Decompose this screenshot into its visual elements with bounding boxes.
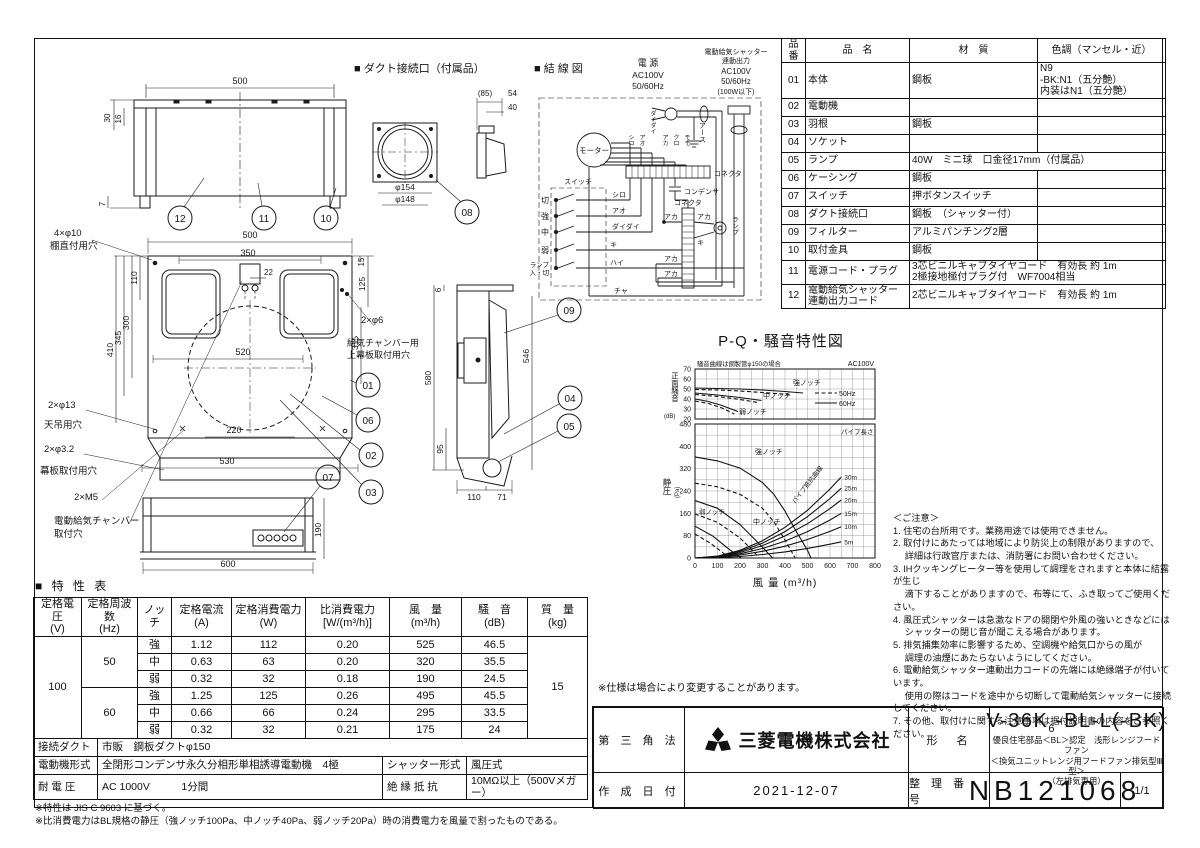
wiring-sw-hi: 強 (541, 211, 549, 221)
dim-frontview-22: 22 (264, 268, 273, 277)
svg-text:300: 300 (757, 563, 769, 570)
table-cell: 鋼板 （シャッター付） (910, 206, 1038, 224)
characteristics-block: ■ 特 性 表 定格電圧 (V)定格周波数 (Hz)ノッチ定格電流 (A)定格消… (33, 577, 587, 829)
spec-sub-table: 接続ダクト市販 鋼板ダクトφ150電動機形式全閉形コンデンサ永久分相形単相誘導電… (33, 738, 588, 800)
wiring-wire-aka2: アカ (697, 213, 711, 221)
table-cell: ケーシング (806, 170, 910, 188)
chart-series-中ノッチ60Hz (695, 393, 761, 401)
table-cell: N9 -BK:N1（五分艶） 内装はN1（五分艶） (1038, 63, 1166, 99)
table-cell: 0.32 (172, 721, 232, 738)
table-cell: 33.5 (462, 704, 528, 721)
table-cell: 絶 縁 抵 抗 (383, 774, 467, 799)
model-name: V-36K6-BL-L(-BK) (986, 710, 1166, 735)
table-cell: 125 (232, 687, 306, 704)
svg-text:700: 700 (847, 563, 859, 570)
wiring-shutter-line3: AC100V (721, 67, 751, 76)
table-cell (1038, 170, 1166, 188)
table-cell: 0.63 (172, 653, 232, 670)
table-cell: 市販 鋼板ダクトφ150 (98, 738, 588, 756)
dim-sideview-6: 6 (434, 287, 443, 292)
svg-text:30: 30 (683, 407, 691, 414)
pq-plot-area: 0801602403204004800100200300400500600700… (679, 422, 881, 571)
dim-duct-148: φ148 (395, 194, 415, 204)
pipe-length-tick: 10m (844, 524, 857, 531)
table-cell: 鋼板 (910, 116, 1038, 134)
pipe-length-label: パイプ長さ (841, 428, 874, 436)
wiring-wire-ki2: キ (697, 240, 704, 247)
table-cell: 0.21 (306, 721, 390, 738)
table-cell: 05 (782, 152, 806, 170)
table-cell: 0.20 (306, 636, 390, 653)
dim-topview-16: 16 (114, 114, 123, 123)
table-cell: 風圧式 (467, 756, 588, 774)
table-cell: 295 (390, 704, 462, 721)
characteristics-title: ■ 特 性 表 (35, 577, 587, 594)
table-cell: 羽根 (806, 116, 910, 134)
callout-10-num: 10 (320, 214, 332, 225)
wiring-section-header: ■ 結 線 図 (534, 61, 583, 75)
model-label: 形 名 (927, 732, 972, 748)
legend-50hz: 50Hz (839, 391, 856, 398)
table-cell: シャッター形式 (383, 756, 467, 774)
callout-11-num: 11 (259, 214, 270, 225)
table-cell: 弱 (138, 670, 172, 687)
date-label: 作 成 日 付 (598, 783, 679, 799)
dim-frontview-110: 110 (129, 271, 139, 285)
characteristics-table: 定格電圧 (V)定格周波数 (Hz)ノッチ定格電流 (A)定格消費電力 (W)比… (33, 597, 588, 739)
table-cell: 全閉形コンデンサ永久分相形単相誘導電動機 4極 (98, 756, 383, 774)
table-cell: 525 (390, 636, 462, 653)
table-cell: 2芯ビニルキャブタイヤコード 有効長 約 1m (910, 284, 1166, 308)
hole-label-m5: 2×M5 (74, 492, 98, 503)
dim-frontview-500: 500 (242, 230, 257, 240)
hole-label-supply: 2×φ6 (361, 315, 383, 326)
chart-title: P-Q・騒音特性図 (718, 333, 844, 350)
table-cell: 45.5 (462, 687, 528, 704)
table-header-cell: 定格電流 (A) (172, 598, 232, 637)
table-cell: 中 (138, 704, 172, 721)
svg-text:70: 70 (683, 367, 691, 374)
pq-label-low: 弱ノッチ (699, 508, 725, 516)
hole-label-shelf: 4×φ10 (54, 228, 82, 239)
pq-noise-chart: 203040506070 080160240320400480010020030… (653, 326, 903, 602)
text-line: 2. 取付けにあたっては地域により防災上の制限がありますので、 (893, 537, 1177, 550)
hole-label-chamber: 電動給気チャンバー (54, 515, 139, 527)
hole-label-ceiling: 2×φ13 (48, 400, 76, 411)
text-line: ※比消費電力はBL規格の静圧（強ノッチ100Pa、中ノッチ40Pa、弱ノッチ20… (35, 816, 587, 829)
text-line: ※特性は JIS C 9603 に基づく。 (35, 803, 587, 816)
wiring-power-freq: 50/60Hz (632, 81, 664, 91)
wiring-wire-aka1: アカ (664, 213, 678, 221)
table-cell: 10 (782, 242, 806, 260)
table-cell (1038, 116, 1166, 134)
table-cell: 強 (138, 687, 172, 704)
pipe-length-tick: 15m (844, 511, 857, 518)
table-footnotes: ※特性は JIS C 9603 に基づく。※比消費電力はBL規格の静圧（強ノッチ… (35, 803, 587, 829)
wiring-wire-aka3: アカ (664, 255, 678, 263)
table-cell (1038, 134, 1166, 152)
text-line: 4. 風圧式シャッターは急激なドアの開閉や外風の強いときなどには (893, 614, 1177, 627)
svg-text:480: 480 (679, 422, 691, 429)
noise-ylabel: 正面騒音 (670, 372, 679, 404)
chart-series-強ノッチ60Hz (695, 457, 811, 558)
table-cell (910, 134, 1038, 152)
table-cell: 耐 電 圧 (34, 774, 98, 799)
table-cell: 63 (232, 653, 306, 670)
wiring-motor-label: モーター (579, 146, 609, 155)
wiring-shutter-line2: 連動出力 (722, 56, 750, 65)
table-cell: 07 (782, 188, 806, 206)
wiring-shutter-line4: 50/60Hz (721, 77, 751, 86)
table-cell: 100 (34, 636, 82, 738)
table-cell: 1.12 (172, 636, 232, 653)
model-cell: V-36K6-BL-L(-BK) 優良住宅部品＜BL＞認定 浅形レンジフードファ… (989, 707, 1164, 773)
pq-label-mid: 中ノッチ (753, 517, 781, 526)
table-cell: 35.5 (462, 653, 528, 670)
dim-frontview-300: 300 (121, 316, 131, 330)
dim-frontview-410: 410 (105, 343, 115, 357)
wiring-shutter-line5: (100W以下) (718, 88, 755, 96)
noise-label-mid: 中ノッチ (763, 391, 791, 400)
table-cell: 46.5 (462, 636, 528, 653)
dim-duct-40: 40 (508, 103, 517, 112)
wiring-connector1-label: コネクタ (714, 169, 742, 178)
svg-text:600: 600 (824, 563, 836, 570)
wiring-lamp-label: ランプ (731, 216, 739, 236)
page-cell: 1/1 (1120, 772, 1164, 809)
table-cell: 320 (390, 653, 462, 670)
table-cell: 0.18 (306, 670, 390, 687)
table-cell: 04 (782, 134, 806, 152)
text-line: 5. 排気捕集効率に影響するため、空調機や給気口からの風が (893, 639, 1177, 652)
table-header-cell: 質 量 (kg) (528, 598, 588, 637)
svg-text:40: 40 (683, 397, 691, 404)
notes-title: ＜ご注意＞ (893, 512, 1177, 525)
dim-sideview-71: 71 (497, 492, 507, 502)
chart-legend (815, 393, 837, 403)
table-cell: 32 (232, 670, 306, 687)
callout-04-num: 04 (564, 394, 576, 405)
dim-duct-54: 54 (508, 89, 517, 98)
table-cell: AC 1000V 1分間 (98, 774, 383, 799)
side-view (432, 285, 532, 494)
table-cell: ソケット (806, 134, 910, 152)
table-cell: 60 (82, 687, 138, 738)
table-cell: 15 (528, 636, 588, 738)
wiring-wirecolor-ao-v: アオ (638, 134, 645, 146)
svg-text:400: 400 (679, 444, 691, 451)
title-block: 第 三 角 法 三菱電機株式会社 形 名 V-36K6-BL-L(-BK) 優良… (592, 706, 1163, 808)
dim-bottomview-600: 600 (220, 559, 235, 569)
table-cell: 175 (390, 721, 462, 738)
hole-label-supply2: 給気チャンバー用 (347, 337, 419, 348)
callout-01-num: 01 (362, 381, 374, 392)
table-cell (1038, 188, 1166, 206)
duct-connector-front-view (372, 122, 438, 205)
chart-note: 騒音曲線は鋼製管φ150の場合 (697, 359, 782, 368)
wiring-sw-low: 弱 (541, 246, 549, 255)
wiring-earth-label: アース (699, 122, 707, 143)
callout-07-num: 07 (322, 473, 334, 484)
projection-cell: 第 三 角 法 (593, 707, 685, 773)
dim-sideview-95: 95 (435, 444, 445, 454)
table-cell: ランプ (806, 152, 910, 170)
noise-ylabel-unit: (dB) (664, 414, 675, 420)
wiring-wirecolor-kuro-v: クロ (672, 134, 679, 146)
callout-06-num: 06 (362, 416, 374, 427)
table-cell: 02 (782, 98, 806, 116)
dim-frontview-350: 350 (240, 248, 255, 258)
wiring-wire-cha: チャ (614, 287, 628, 295)
table-header-cell: 品 名 (806, 39, 910, 63)
pipe-length-tick: 25m (844, 486, 857, 493)
table-cell: 弱 (138, 721, 172, 738)
table-cell: 495 (390, 687, 462, 704)
table-header-cell: 比消費電力 [W/(m³/h)] (306, 598, 390, 637)
wiring-wirecolor-daidai-v: ダイダイ (649, 109, 656, 134)
table-header-cell: 定格周波数 (Hz) (82, 598, 138, 637)
table-cell: 3芯ビニルキャブタイヤコード 有効長 約 1m 2極接地極付プラグ付 WF700… (910, 260, 1166, 284)
hole-label-shelf2: 棚直付用穴 (50, 240, 98, 252)
pipe-length-tick: 5m (844, 539, 853, 546)
svg-text:100: 100 (712, 563, 724, 570)
svg-text:0: 0 (693, 563, 697, 570)
projection-label: 第 三 角 法 (598, 732, 679, 748)
table-cell (1038, 206, 1166, 224)
table-cell: 03 (782, 116, 806, 134)
table-cell: フィルター (806, 224, 910, 242)
wiring-wirecolor-shiro-v: シロ (627, 134, 634, 146)
table-cell: 40W ミニ球 口金径17mm（付属品） (910, 152, 1166, 170)
dim-duct-85: (85) (478, 89, 493, 98)
callout-08-num: 08 (461, 208, 473, 219)
table-cell: 09 (782, 224, 806, 242)
dim-sideview-110: 110 (467, 492, 481, 502)
wiring-wire-hai: ハイ (610, 260, 624, 267)
callout-12 (168, 178, 204, 230)
table-cell (910, 98, 1038, 116)
company-cell: 三菱電機株式会社 (684, 707, 909, 773)
table-cell: 0.20 (306, 653, 390, 670)
svg-text:800: 800 (869, 563, 881, 570)
svg-text:200: 200 (734, 563, 746, 570)
hole-label-ceiling2: 天吊用穴 (44, 419, 83, 431)
top-view (108, 84, 346, 210)
table-cell: 0.24 (306, 704, 390, 721)
legend-60hz: 60Hz (839, 401, 856, 408)
wiring-wire-ao: アオ (612, 207, 626, 215)
date-cell: 2021-12-07 (684, 772, 909, 809)
svg-text:240: 240 (679, 489, 691, 496)
text-line: 6. 電動給気シャッター連動出力コードの先端には絶縁端子が付いています。 (893, 664, 1177, 689)
dim-topview-7: 7 (98, 201, 107, 206)
table-cell: 24 (462, 721, 528, 738)
dim-bottomview-190: 190 (313, 523, 323, 537)
table-cell: スイッチ (806, 188, 910, 206)
wiring-wire-ki: キ (610, 242, 617, 249)
wiring-shutter-line1: 電動給気シャッター (705, 47, 768, 56)
svg-text:500: 500 (802, 563, 814, 570)
svg-text:0: 0 (687, 556, 691, 563)
wiring-power-label: 電 源 (638, 58, 659, 68)
hole-label-band2: 幕板取付用穴 (40, 465, 98, 477)
table-cell: 112 (232, 636, 306, 653)
table-cell: 11 (782, 260, 806, 284)
table-cell: ダクト接続口 (806, 206, 910, 224)
wiring-condenser-label: コンデンサ (684, 187, 719, 196)
table-cell: 電源コード・プラグ (806, 260, 910, 284)
wiring-sw-lamp2: 入・切 (530, 269, 550, 277)
table-cell (1038, 98, 1166, 116)
dim-topview-500: 500 (232, 76, 247, 86)
wiring-wirecolor-aka-v: アカ (661, 134, 668, 146)
dim-frontview-520: 520 (235, 347, 250, 357)
pipe-length-tick: 20m (844, 497, 857, 504)
wiring-wirecolor-momo-v: モモ (683, 134, 690, 146)
chart-voltage: AC100V (848, 361, 874, 368)
table-cell: 本体 (806, 63, 910, 99)
table-cell: 01 (782, 63, 806, 99)
text-line: 詳細は行政官庁または、消防署にお問い合わせください。 (893, 550, 1177, 563)
wiring-sw-mid: 中 (541, 227, 549, 237)
dim-frontview-220: 220 (226, 425, 241, 435)
text-line: 滴下することがありますので、布等にて、ふき取ってご使用ください。 (893, 588, 1177, 613)
dim-frontview-530: 530 (219, 456, 234, 466)
spec-change-note: ※仕様は場合により変更することがあります。 (598, 679, 805, 694)
text-line: 調理の油煙にあたらないようにしてください。 (893, 652, 1177, 665)
table-cell: 1.25 (172, 687, 232, 704)
table-header-cell: 風 量 (m³/h) (390, 598, 462, 637)
table-cell: 66 (232, 704, 306, 721)
document-number: NB121068 (969, 775, 1141, 807)
wiring-wire-aka4: アカ (664, 270, 678, 278)
table-header-cell: 定格電圧 (V) (34, 598, 82, 637)
wiring-sw-off: 切 (541, 196, 549, 205)
text-line: 3. IHクッキングヒーター等を使用して調理をされますと本体に結露が生じ (893, 563, 1177, 588)
svg-text:60: 60 (683, 377, 691, 384)
text-line: シャッターの閉じ音が聞こえる場合があります。 (893, 626, 1177, 639)
dim-sideview-580: 580 (423, 371, 433, 385)
hole-label-band: 2×φ3.2 (44, 444, 74, 455)
date-label-cell: 作 成 日 付 (593, 772, 685, 809)
table-cell: 鋼板 (910, 242, 1038, 260)
table-cell: 06 (782, 170, 806, 188)
table-cell: 10MΩ以上（500Vメガー） (467, 774, 588, 799)
table-cell: 電動機形式 (34, 756, 98, 774)
svg-text:320: 320 (679, 466, 691, 473)
table-header-cell: 色調（マンセル・近） (1038, 39, 1166, 63)
wiring-connector2-label: コネクタ (674, 198, 702, 207)
wiring-wire-daidai: ダイダイ (612, 222, 640, 231)
creation-date: 2021-12-07 (753, 783, 840, 798)
callout-05-num: 05 (563, 422, 575, 433)
chart-series-弱ノッチ60Hz (695, 399, 738, 412)
table-cell: 接続ダクト (34, 738, 98, 756)
table-cell: 強 (138, 636, 172, 653)
chart-xlabel: 風 量 (m³/h) (753, 577, 818, 589)
wiring-power-voltage: AC100V (632, 70, 664, 80)
table-cell: 取付金具 (806, 242, 910, 260)
table-cell: 0.32 (172, 670, 232, 687)
callout-09-num: 09 (563, 306, 575, 317)
duct-connector-side-view (477, 98, 506, 178)
table-cell: 32 (232, 721, 306, 738)
table-header-cell: 材 質 (910, 39, 1038, 63)
dim-duct-154: φ154 (395, 182, 415, 192)
table-cell: 12 (782, 284, 806, 308)
table-cell: 0.26 (306, 687, 390, 704)
pq-ylabel: 静圧 (662, 477, 672, 496)
noise-label-low: 弱ノッチ (739, 408, 767, 416)
table-header-cell: 品番 (782, 39, 806, 63)
callout-02-num: 02 (365, 451, 377, 462)
table-cell (1038, 242, 1166, 260)
hole-label-chamber2: 取付穴 (54, 528, 83, 540)
table-cell: 押ボタンスイッチ (910, 188, 1038, 206)
wiring-sw-lamp1: ランプ (530, 261, 550, 269)
table-cell: 電動給気シャッター 連動出力コード (806, 284, 910, 308)
model-label-cell: 形 名 (908, 707, 990, 773)
table-cell (1038, 224, 1166, 242)
table-cell: 24.5 (462, 670, 528, 687)
parts-table: 品番品 名材 質色調（マンセル・近）01本体鋼板N9 -BK:N1（五分艶） 内… (781, 38, 1166, 309)
table-cell: 08 (782, 206, 806, 224)
hole-label-supply3: 上幕板取付用穴 (347, 349, 410, 360)
duct-section-header: ■ ダクト接続口（付属品） (354, 61, 485, 75)
table-header-cell: 騒 音 (dB) (462, 598, 528, 637)
svg-text:400: 400 (779, 563, 791, 570)
dim-sideview-546: 546 (521, 349, 531, 363)
table-cell: 50 (82, 636, 138, 687)
page-number: 1/1 (1134, 785, 1149, 797)
svg-text:160: 160 (679, 511, 691, 518)
table-cell: 0.66 (172, 704, 232, 721)
pq-ylabel-unit: (Pa) (675, 487, 681, 498)
table-cell: 電動機 (806, 98, 910, 116)
mitsubishi-logo-icon (703, 725, 733, 755)
drawing-sheet: 500 30 16 7 12 11 10 ■ ダクト接続口（付属品） (0, 0, 1200, 848)
dim-topview-30: 30 (103, 113, 112, 122)
svg-text:50: 50 (683, 387, 691, 394)
pq-label-hi: 強ノッチ (755, 448, 783, 456)
table-cell: 190 (390, 670, 462, 687)
company-name: 三菱電機株式会社 (739, 727, 891, 753)
table-header-cell: 定格消費電力 (W) (232, 598, 306, 637)
text-line: 1. 住宅の台所用です。業務用途では使用できません。 (893, 525, 1177, 538)
noise-label-hi: 強ノッチ (793, 379, 821, 387)
pipe-length-tick: 30m (844, 475, 857, 482)
number-cell: NB121068 (989, 772, 1121, 809)
table-header-cell: ノッチ (138, 598, 172, 637)
table-cell: 中 (138, 653, 172, 670)
table-cell: 鋼板 (910, 170, 1038, 188)
dim-frontview-125: 125 (357, 277, 367, 291)
table-cell: アルミパンチング2層 (910, 224, 1038, 242)
callout-12-num: 12 (174, 214, 186, 225)
wiring-switch-label: スイッチ (564, 178, 592, 186)
callout-03-num: 03 (365, 488, 377, 499)
svg-text:80: 80 (683, 533, 691, 540)
wiring-wire-shiro: シロ (612, 192, 626, 199)
table-cell: 鋼板 (910, 63, 1038, 99)
dim-frontview-15: 15 (357, 257, 366, 266)
